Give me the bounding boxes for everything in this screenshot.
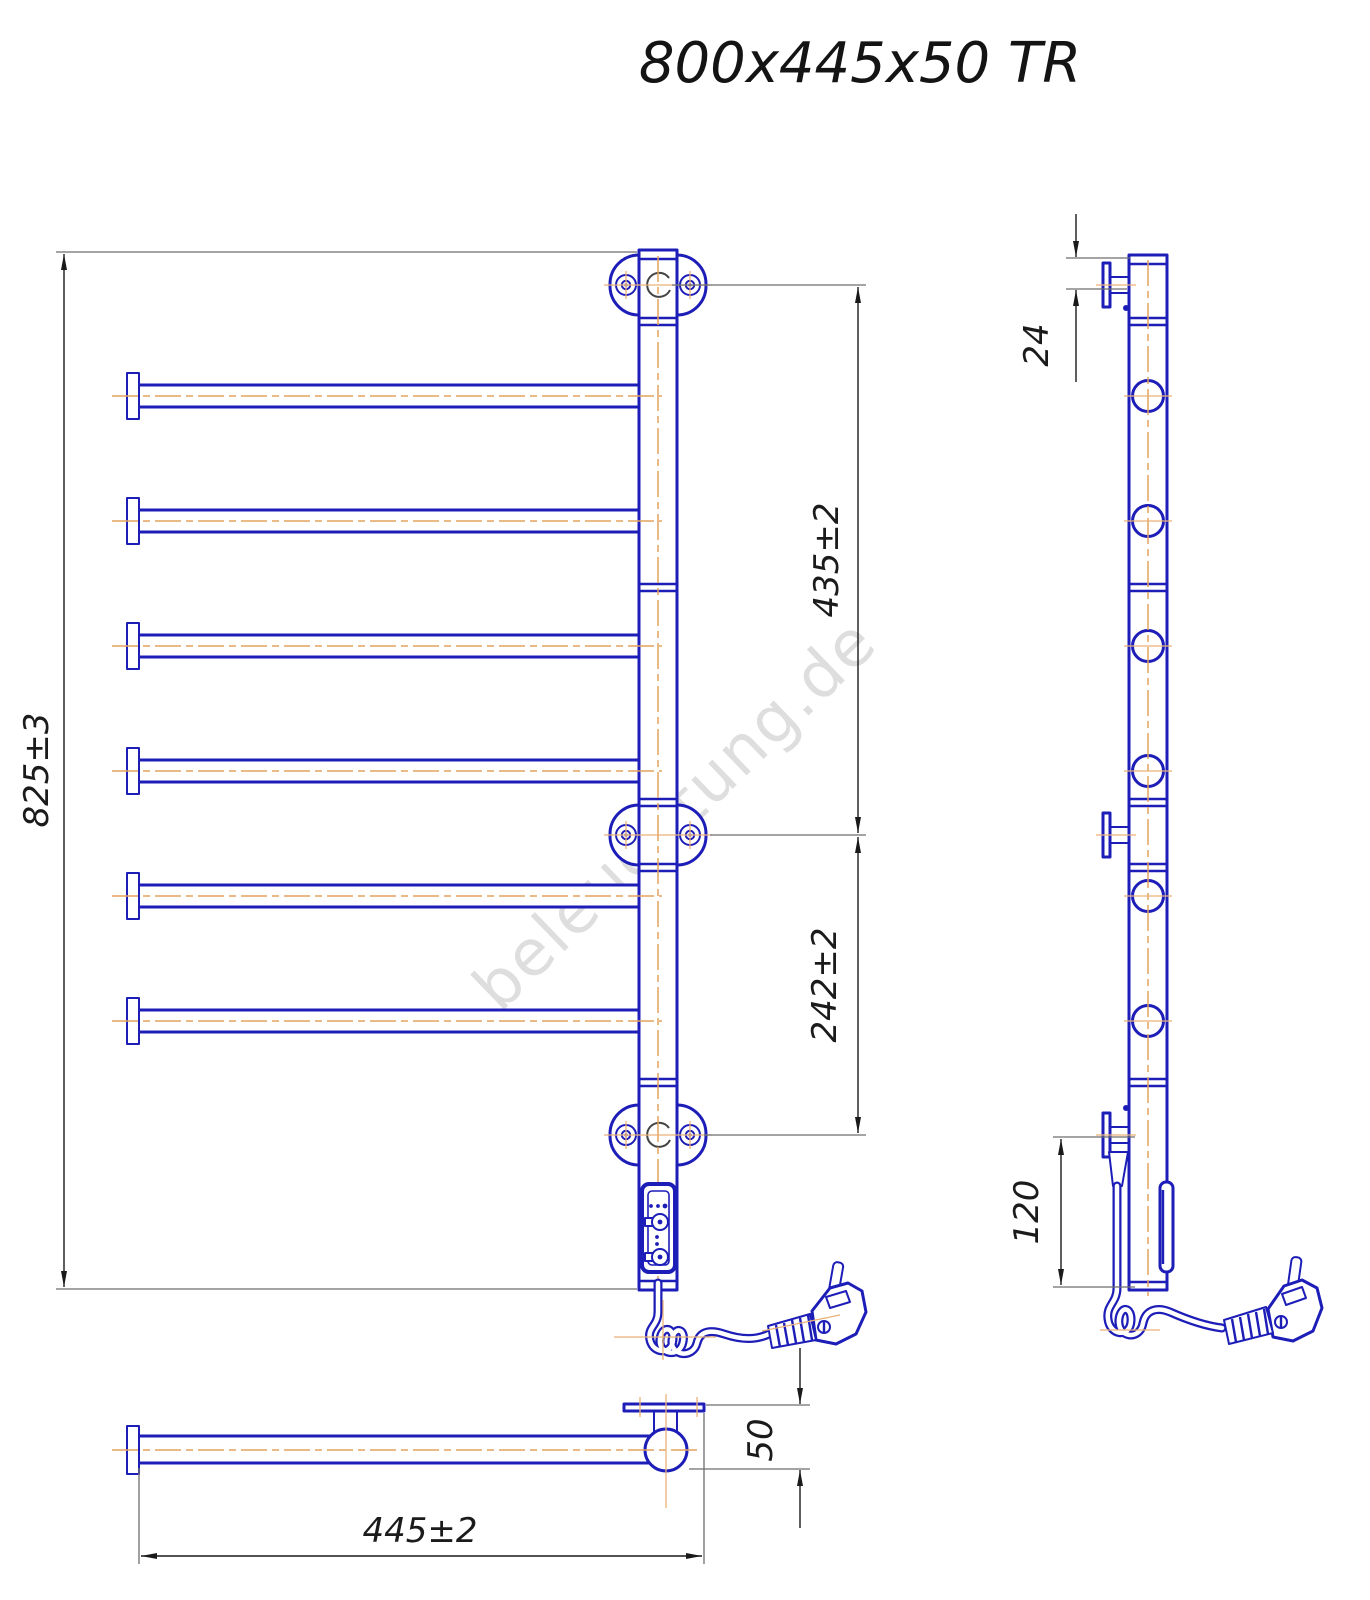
indicator-led	[663, 1204, 668, 1209]
power-plug-front	[762, 1262, 866, 1348]
svg-text:825±3: 825±3	[17, 712, 57, 827]
bottom-view	[112, 1394, 704, 1508]
dim-lower-section: 242±2	[704, 837, 866, 1135]
svg-text:50: 50	[741, 1418, 781, 1461]
cable-gland	[1109, 1152, 1128, 1186]
indicator-led	[649, 1204, 653, 1208]
front-view	[112, 250, 866, 1360]
power-cord-front	[614, 1283, 769, 1360]
indicator-led	[656, 1204, 660, 1208]
dim-depth: 50	[689, 1348, 810, 1528]
wall-brackets-side	[1103, 263, 1129, 1157]
controller-side	[1160, 1182, 1173, 1272]
svg-text:242±2: 242±2	[805, 927, 845, 1042]
indicator-led	[655, 1235, 659, 1239]
side-view	[1096, 255, 1322, 1344]
dim-top-bracket-offset: 24	[1017, 214, 1130, 382]
bracket-side	[1103, 1105, 1129, 1157]
controller	[642, 1184, 675, 1272]
svg-text:24: 24	[1017, 323, 1057, 366]
bracket-side	[1103, 263, 1129, 311]
indicator-led	[655, 1242, 659, 1246]
technical-drawing: 800x445x50 TR beleuchtung.de	[0, 0, 1370, 1600]
drawing-title: 800x445x50 TR	[639, 31, 1081, 96]
svg-text:120: 120	[1007, 1180, 1047, 1245]
svg-text:435±2: 435±2	[807, 502, 847, 617]
svg-text:445±2: 445±2	[362, 1511, 477, 1551]
mount-plate	[624, 1404, 704, 1411]
drawing-page: 800x445x50 TR beleuchtung.de	[0, 0, 1370, 1600]
